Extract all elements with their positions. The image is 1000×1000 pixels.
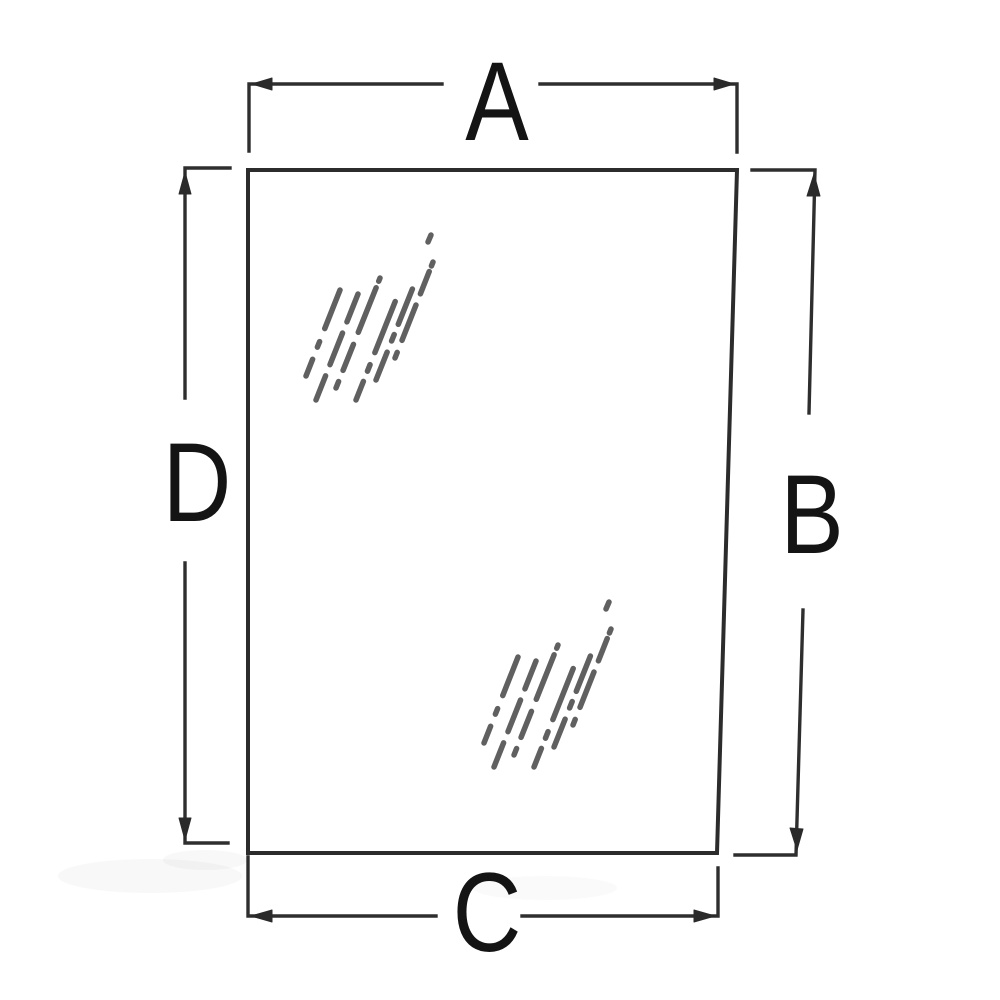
arrowhead-c-left bbox=[251, 910, 272, 922]
dimension-d-top-bracket bbox=[185, 168, 230, 398]
dimension-d-bottom-bracket bbox=[185, 563, 228, 843]
glare-marks-lower bbox=[484, 602, 611, 767]
diagram-canvas: A D B C bbox=[0, 0, 1000, 1000]
glass-pane-outline bbox=[248, 170, 737, 853]
glare-marks-upper bbox=[306, 235, 433, 400]
dimension-c: C bbox=[248, 851, 718, 976]
arrowhead-c-right bbox=[694, 910, 715, 922]
dimension-a-right-bracket bbox=[540, 84, 737, 152]
dimension-label-c: C bbox=[453, 851, 522, 976]
dimension-d: D bbox=[163, 168, 232, 843]
arrowhead-d-bottom bbox=[179, 818, 191, 840]
arrowhead-b-top bbox=[807, 174, 820, 196]
dimension-label-d: D bbox=[163, 421, 232, 546]
dimension-b-bottom-bracket bbox=[735, 610, 803, 855]
arrowhead-b-bottom bbox=[790, 828, 803, 850]
dimension-diagram: A D B C bbox=[0, 0, 1000, 1000]
dimension-a-left-bracket bbox=[249, 84, 442, 151]
arrowhead-a-right bbox=[714, 78, 734, 90]
dimension-label-b: B bbox=[780, 453, 843, 578]
dimension-b: B bbox=[735, 170, 844, 855]
background-smudges bbox=[58, 850, 617, 900]
arrowhead-d-top bbox=[179, 172, 191, 194]
dimension-label-a: A bbox=[465, 40, 529, 165]
dimension-c-left-bracket bbox=[248, 857, 436, 916]
arrowhead-a-left bbox=[252, 78, 272, 90]
dimension-a: A bbox=[249, 40, 737, 165]
dimension-b-top-bracket bbox=[752, 170, 815, 413]
